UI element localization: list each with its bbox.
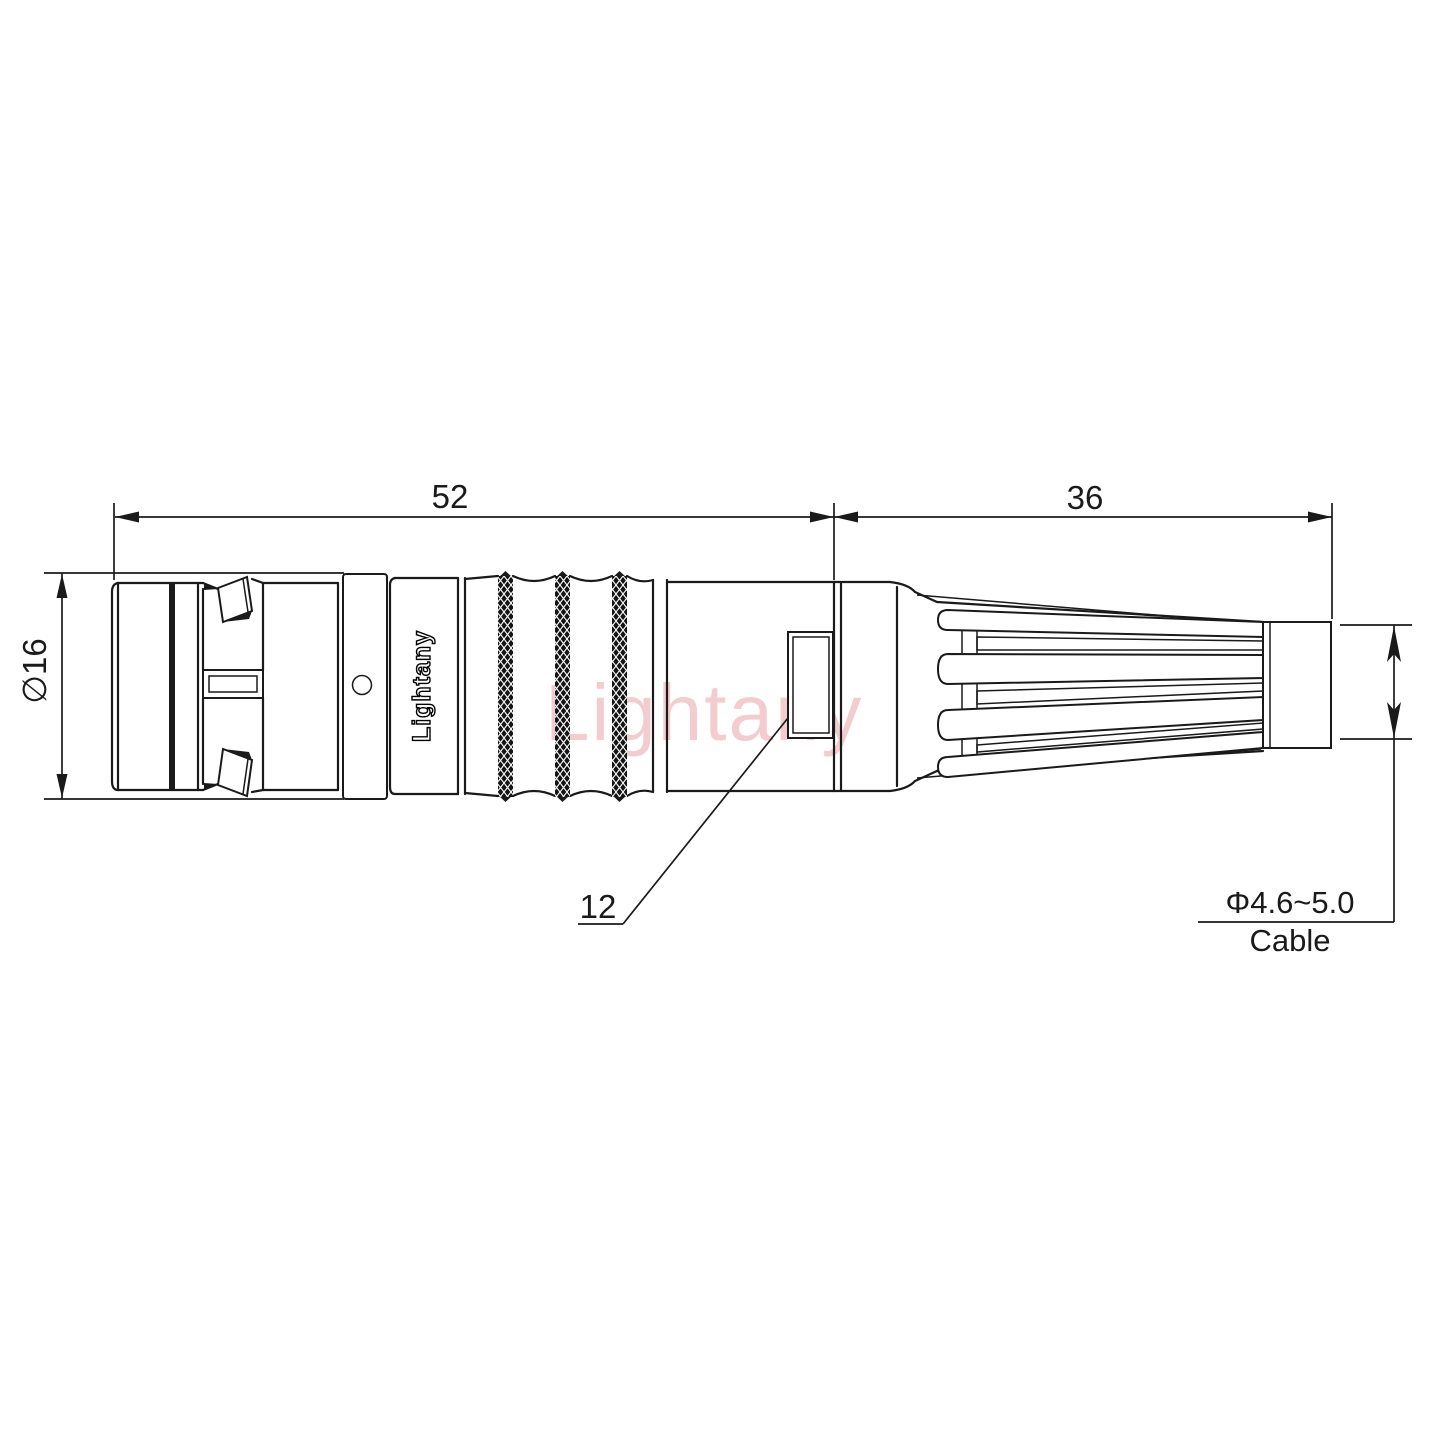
knurl-band-2: [555, 571, 570, 802]
label-12-text: 12: [580, 888, 617, 925]
dim-52-label: 52: [432, 478, 469, 515]
cable-diameter-label: Φ4.6~5.0: [1225, 885, 1354, 920]
dim-36-label: 36: [1067, 479, 1104, 516]
dia16-label: ∅16: [16, 638, 53, 703]
dimension-36: 36: [834, 479, 1332, 619]
connector-technical-drawing: Lightany 52 36 ∅16 Φ4.6~5.0 Cable: [0, 0, 1440, 1440]
cable-end-block: [1263, 622, 1331, 748]
drawing-page: Lightany 52 36 ∅16 Φ4.6~5.0 Cable: [0, 0, 1440, 1440]
strain-relief-boot: [834, 582, 1263, 791]
knurl-band-1: [498, 571, 513, 802]
cable-word-label: Cable: [1250, 923, 1331, 958]
collar: [343, 574, 387, 799]
brand-text: Lightany: [408, 630, 436, 742]
brand-barrel: Lightany: [390, 578, 465, 794]
dimension-dia16: ∅16: [16, 573, 344, 799]
knurl-band-3: [612, 571, 627, 802]
dimension-52: 52: [114, 478, 834, 580]
front-sleeve: [112, 577, 338, 796]
keyway: [203, 577, 263, 796]
